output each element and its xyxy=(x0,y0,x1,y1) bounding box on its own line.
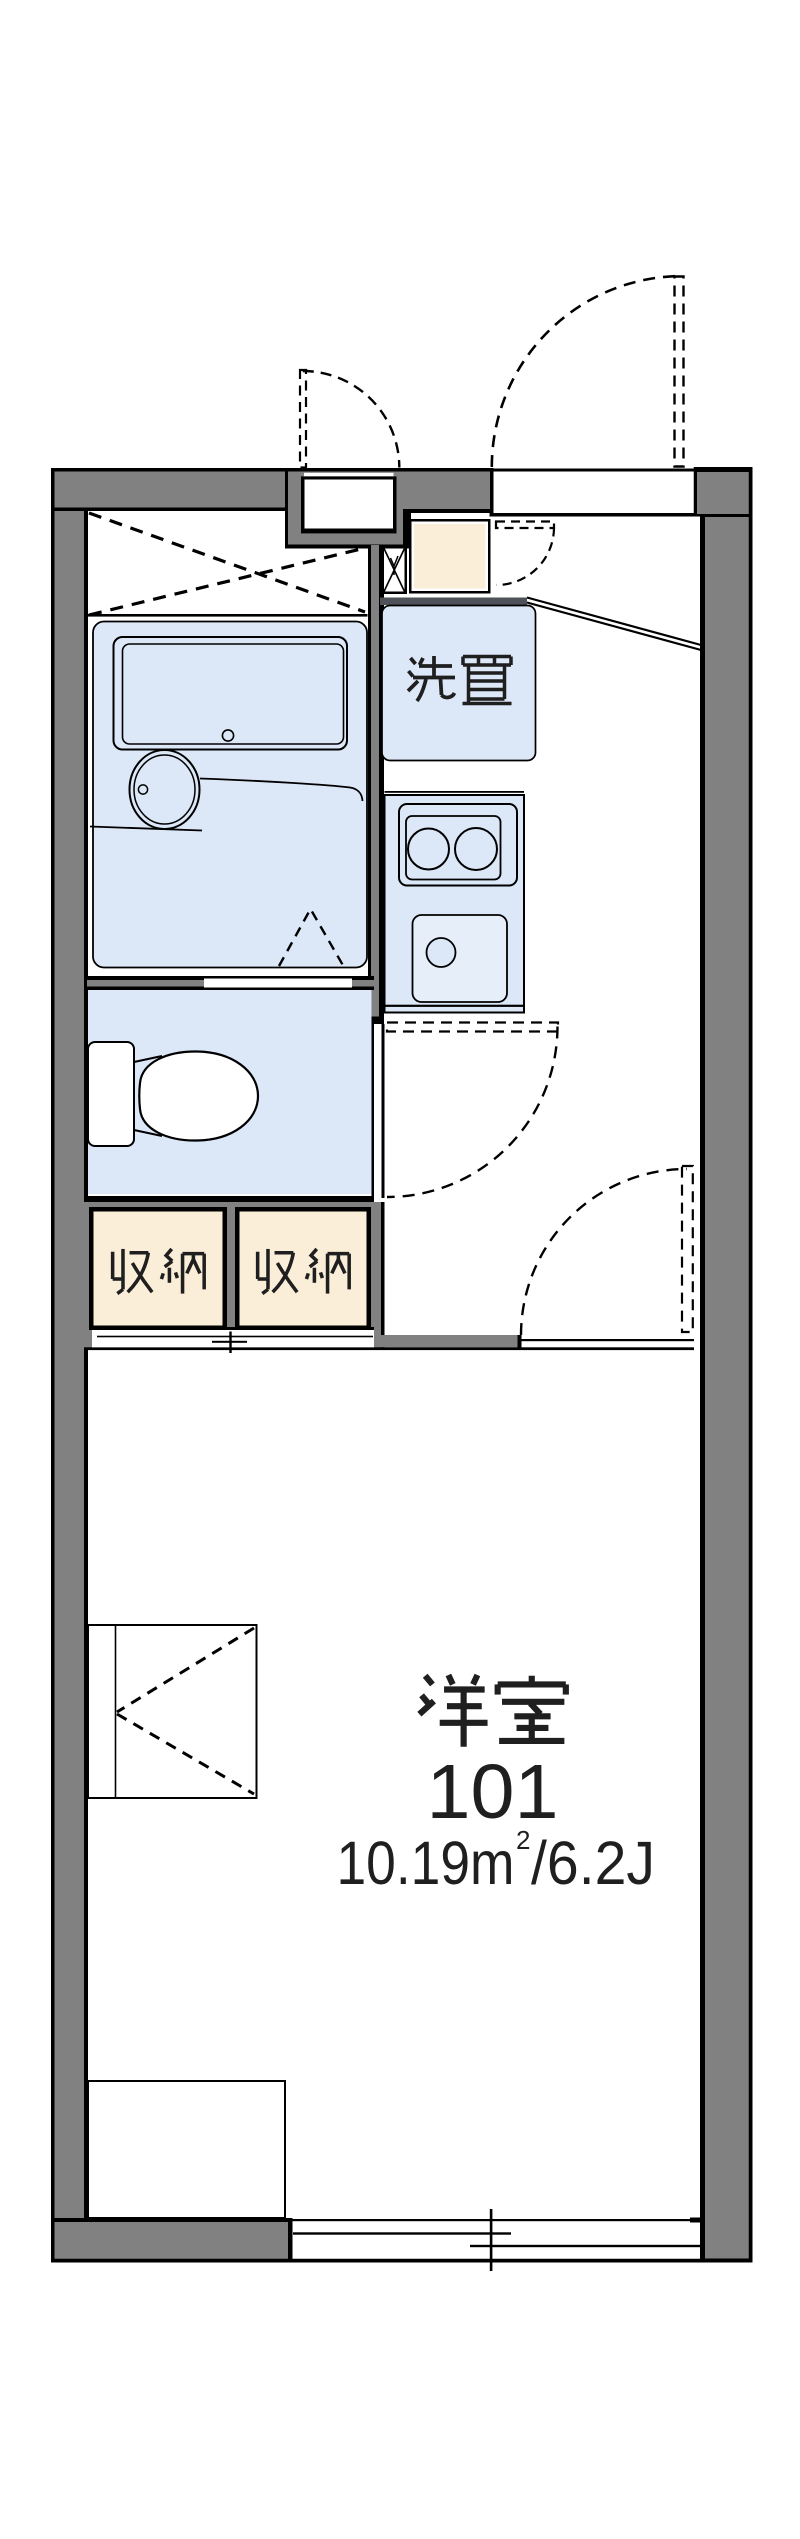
svg-text:/6.2J: /6.2J xyxy=(531,1829,655,1897)
svg-text:10.19m: 10.19m xyxy=(337,1829,515,1897)
svg-text:101: 101 xyxy=(427,1749,559,1835)
svg-text:2: 2 xyxy=(516,1825,530,1855)
